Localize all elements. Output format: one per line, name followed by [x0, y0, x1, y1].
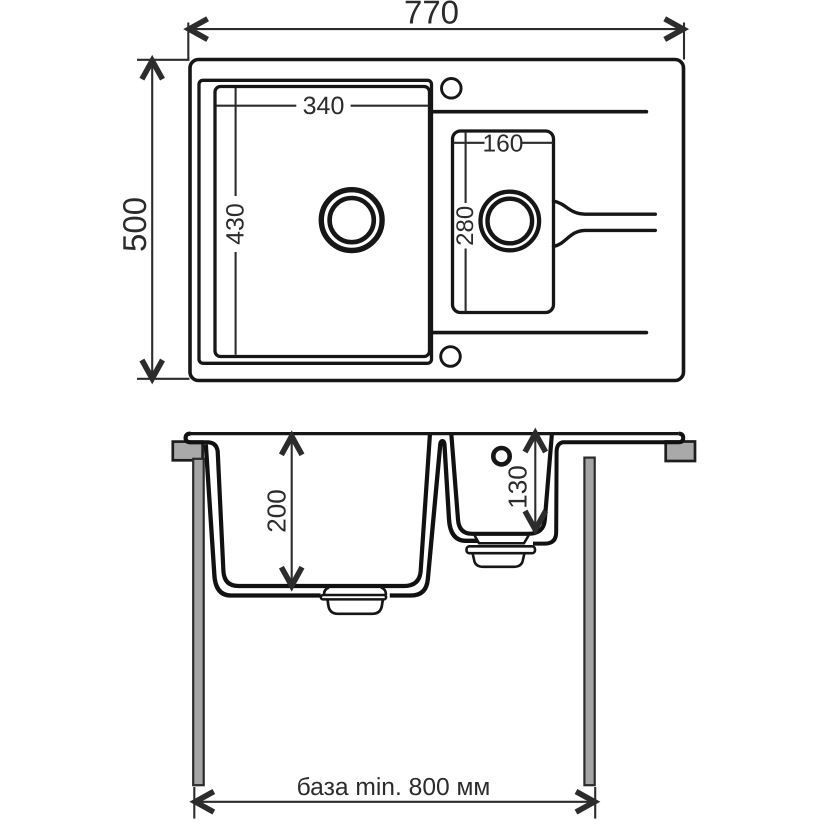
svg-text:430: 430: [222, 203, 250, 245]
svg-text:770: 770: [404, 0, 459, 31]
svg-text:130: 130: [503, 465, 533, 508]
svg-text:база min. 800 мм: база min. 800 мм: [297, 774, 491, 801]
svg-text:280: 280: [452, 206, 479, 246]
svg-text:340: 340: [303, 92, 345, 120]
svg-text:200: 200: [262, 489, 292, 532]
svg-text:500: 500: [116, 197, 153, 252]
svg-text:160: 160: [483, 131, 524, 158]
